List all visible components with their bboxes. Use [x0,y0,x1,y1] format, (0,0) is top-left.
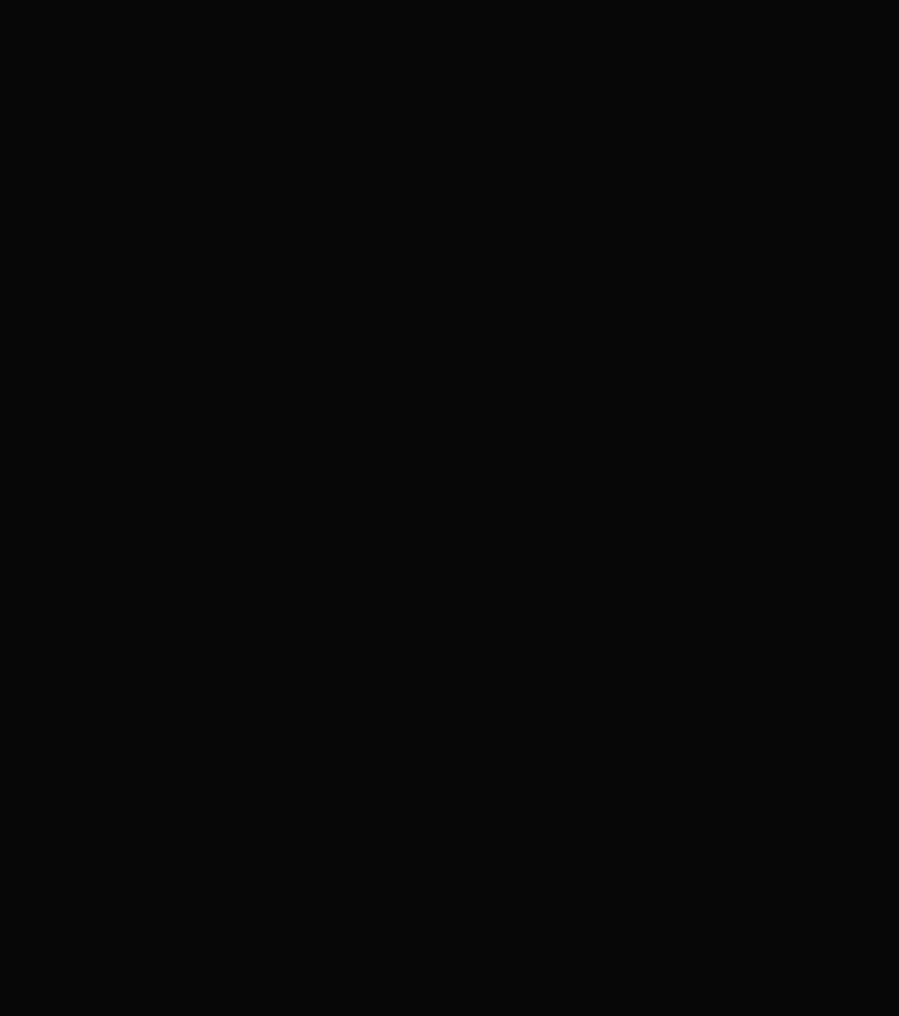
photo-background [0,0,899,1016]
scanned-map-page [0,0,899,1016]
sanborn-map [0,0,899,1016]
